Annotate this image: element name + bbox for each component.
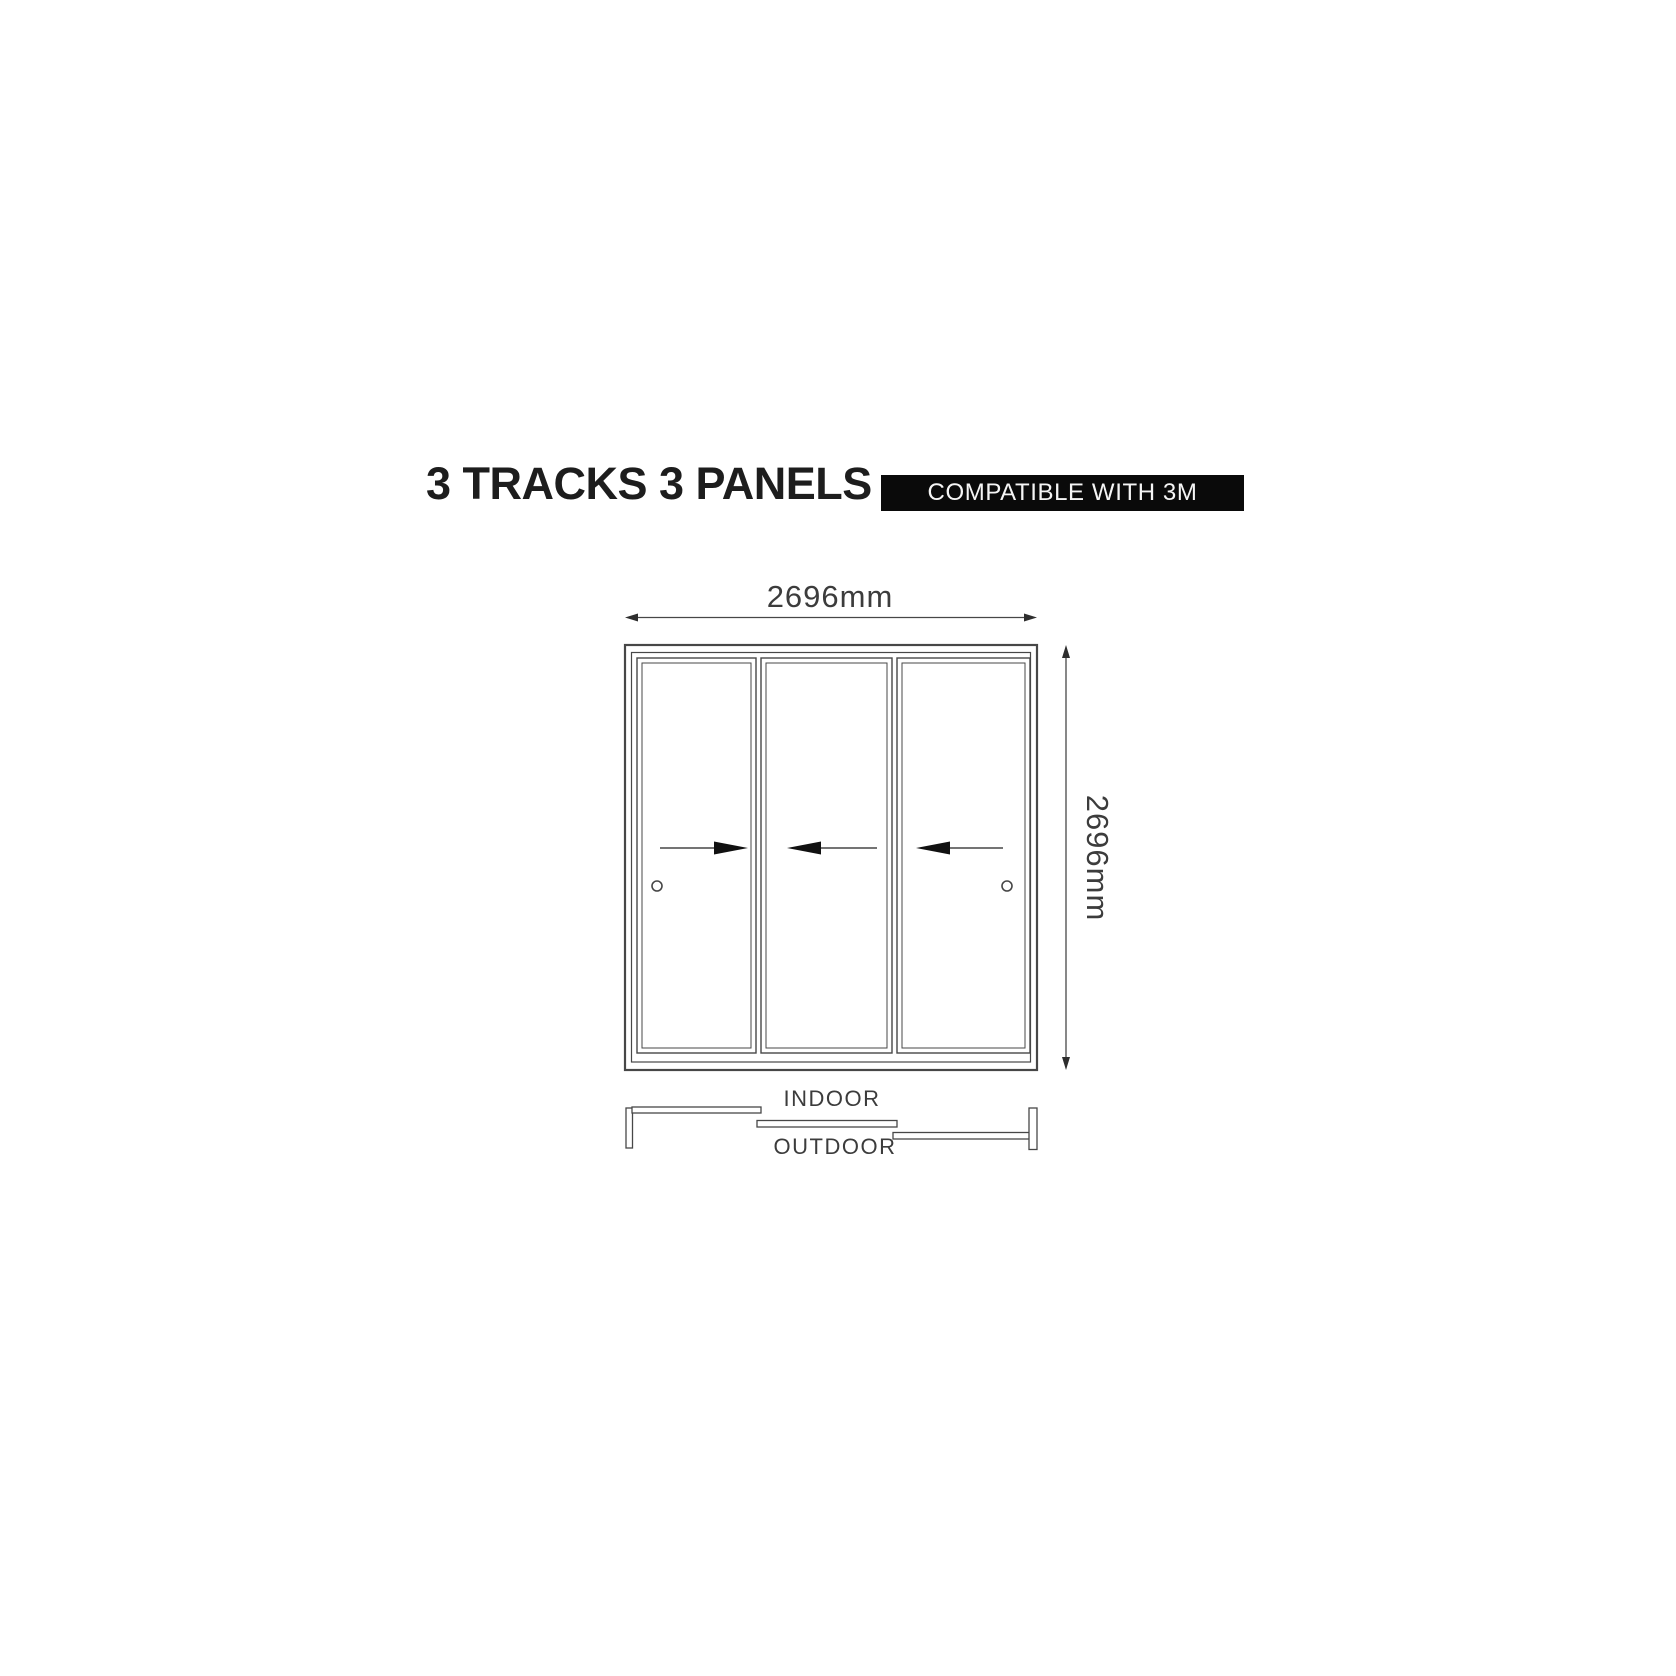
panel-3: [897, 658, 1030, 1053]
panel-1-glass: [642, 663, 751, 1048]
plan-middle-panel: [757, 1121, 897, 1128]
plan-right-jamb: [1029, 1108, 1037, 1150]
indoor-label: INDOOR: [784, 1086, 881, 1111]
height-dimension: 2696mm: [1062, 645, 1115, 1070]
panel-3-glass: [902, 663, 1025, 1048]
width-dimension-label: 2696mm: [767, 579, 894, 614]
height-dimension-label: 2696mm: [1080, 795, 1115, 922]
plan-left-jamb: [626, 1108, 633, 1148]
door-elevation: [625, 645, 1037, 1070]
panel-2: [761, 658, 892, 1053]
track-plan-view: INDOOR OUTDOOR: [626, 1086, 1037, 1159]
height-dim-arrow-top-icon: [1062, 645, 1070, 658]
width-dim-arrow-right-icon: [1024, 614, 1037, 622]
height-dim-arrow-bottom-icon: [1062, 1057, 1070, 1070]
plan-outdoor-panel: [893, 1133, 1031, 1140]
panel-1: [637, 658, 756, 1053]
outdoor-label: OUTDOOR: [774, 1134, 897, 1159]
panel-3-handle: [1002, 881, 1012, 891]
panel-2-glass: [766, 663, 887, 1048]
page: 3 TRACKS 3 PANELS COMPATIBLE WITH 3M 269…: [0, 0, 1676, 1676]
width-dim-arrow-left-icon: [625, 614, 638, 622]
width-dimension: 2696mm: [625, 579, 1037, 622]
panel-1-handle: [652, 881, 662, 891]
plan-indoor-panel: [632, 1107, 761, 1113]
door-diagram: 2696mm 2696mm: [0, 0, 1676, 1676]
